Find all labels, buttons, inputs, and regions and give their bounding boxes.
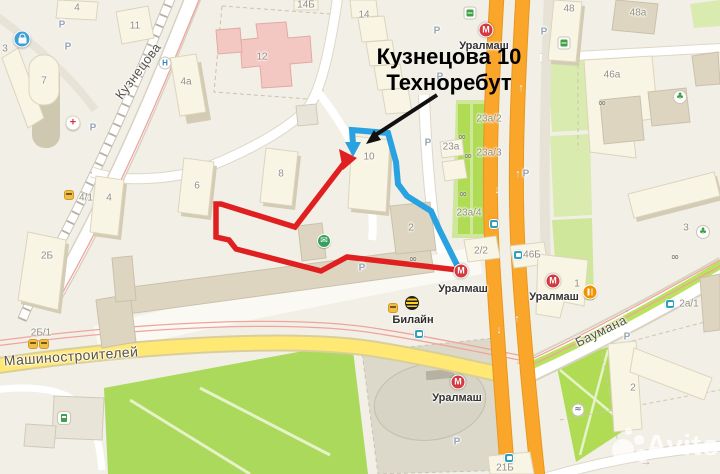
bike-icon: ∞ <box>458 133 466 143</box>
building-label: 23а/2 <box>476 114 501 125</box>
fuel-station-icon <box>57 411 71 425</box>
bike-icon: ∞ <box>464 152 472 162</box>
building-label: 2Б/1 <box>31 328 51 339</box>
car-service-icon <box>28 339 38 349</box>
bus-stop-icon <box>414 329 424 339</box>
building-label: 1 <box>574 279 580 290</box>
bus-stop-icon <box>665 299 675 309</box>
shopping-icon <box>14 31 31 48</box>
fountain-icon: ≈ <box>572 404 585 417</box>
building-label: 14 <box>358 10 369 21</box>
parking-label: Р <box>65 42 72 53</box>
parking-label: Р <box>359 263 366 274</box>
building-label: 2 <box>408 223 414 234</box>
post-office-icon: ✉ <box>317 234 331 248</box>
building-label: 4 <box>106 193 112 204</box>
traffic-arrow-down-icon: ↓ <box>496 324 502 336</box>
pharmacy-icon: + <box>66 116 81 131</box>
map-image[interactable]: Кузнецова Машиностроителей Баумана 3 7 4… <box>0 0 720 474</box>
metro-icon: М <box>546 274 561 289</box>
traffic-arrow-up-icon: ↑ <box>515 168 521 180</box>
building-label: 48 <box>563 4 574 15</box>
building-label: 2 <box>630 383 636 394</box>
building-label-10: 10 <box>363 152 374 163</box>
building-label: 46а <box>604 70 621 81</box>
building-label: 21Б <box>496 463 514 474</box>
beeline-label: Билайн <box>392 314 433 326</box>
building-label: 2Б <box>41 251 53 262</box>
bike-icon: ∞ <box>409 255 417 265</box>
annotation-address: Кузнецова 10 <box>338 44 560 70</box>
parking-label: Р <box>90 123 97 134</box>
shop-icon: ♣ <box>673 90 687 104</box>
bike-icon: ∞ <box>598 99 606 109</box>
building-label: 7 <box>41 76 47 87</box>
building-label: 3 <box>2 44 8 55</box>
metro-station-label: Уралмаш <box>529 291 579 303</box>
building-label: 3 <box>683 223 689 234</box>
building-label: 4/1 <box>79 193 93 204</box>
building-label: 4 <box>74 3 80 14</box>
parking-label: Р <box>59 20 66 31</box>
bus-stop-icon <box>513 250 523 260</box>
building-label: 6 <box>194 181 200 192</box>
metro-icon: М <box>454 264 469 279</box>
building-label: 48а <box>630 8 647 19</box>
bus-stop-icon <box>504 453 514 463</box>
restaurant-icon <box>583 285 598 300</box>
parking-label: Р <box>434 26 441 37</box>
traffic-arrow-right-icon: → <box>641 456 652 468</box>
building-label: 23а/4 <box>456 208 481 219</box>
annotation-name: Техноребут <box>338 70 560 96</box>
parking-label: Р <box>523 169 530 180</box>
shop-icon: ♣ <box>696 225 710 239</box>
building-label: 23а/3 <box>476 148 501 159</box>
parking-label: Р <box>624 332 631 343</box>
building-label: 4а <box>180 77 191 88</box>
metro-icon: М <box>451 375 466 390</box>
building-label: 12 <box>256 52 267 63</box>
tram-stop-icon <box>64 190 74 200</box>
bike-icon: ∞ <box>671 253 679 263</box>
parking-label: Р <box>541 27 548 38</box>
bus-stop-icon <box>489 219 499 229</box>
destination-annotation: Кузнецова 10 Техноребут <box>338 44 560 96</box>
traffic-arrow-up-icon: ↑ <box>514 313 520 325</box>
traffic-arrow-down-icon: ↓ <box>494 184 500 196</box>
building-label: 2/2 <box>474 246 488 257</box>
beeline-icon <box>405 296 419 310</box>
metro-station-label: Уралмаш <box>432 392 482 404</box>
building-label: 46Б <box>523 250 541 261</box>
building-label: 2а/1 <box>679 299 698 310</box>
parking-label: Р <box>425 138 432 149</box>
medical-icon: Н <box>159 57 172 70</box>
building-label: 11 <box>130 21 140 32</box>
building-label: 23а <box>443 142 460 153</box>
metro-station-label: Уралмаш <box>438 283 488 295</box>
atm-icon <box>464 7 477 20</box>
parking-label: Р <box>454 437 461 448</box>
metro-icon: М <box>479 23 494 38</box>
building-label: 8 <box>278 169 284 180</box>
building-label: 14Б <box>297 0 315 11</box>
tram-stop-icon <box>388 303 398 313</box>
car-service-icon <box>39 339 49 349</box>
bike-icon: ∞ <box>459 190 467 200</box>
